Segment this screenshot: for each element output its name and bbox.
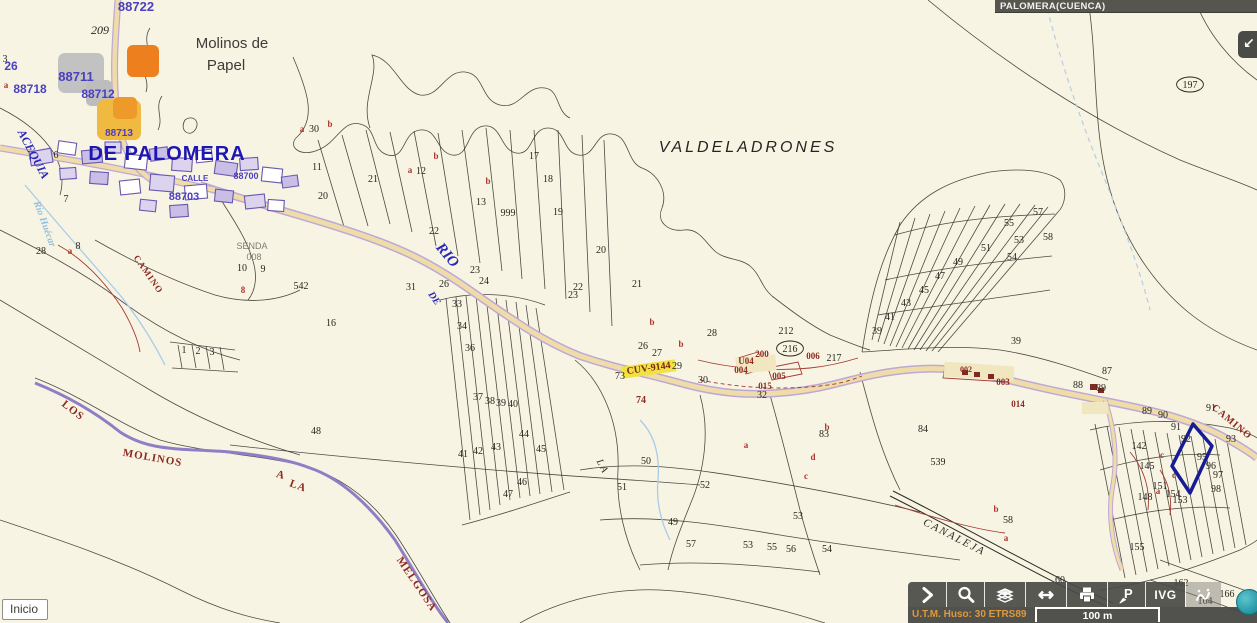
map-label: 20 <box>596 245 606 256</box>
map-label: 92 <box>1181 434 1191 445</box>
map-label: 005 <box>772 371 786 381</box>
map-label: 89 <box>1142 406 1152 417</box>
map-toolbar: P IVG <box>908 582 1221 607</box>
map-label: 28 <box>36 246 46 257</box>
map-label: 53 <box>743 540 753 551</box>
map-label: a <box>1004 533 1009 543</box>
map-label: 47 <box>935 271 945 282</box>
map-label: 74 <box>636 395 646 406</box>
map-label: DE PALOMERA <box>88 143 245 165</box>
map-label: 39 <box>872 326 882 337</box>
map-label: 55 <box>1004 218 1014 229</box>
map-label: 88 <box>1073 380 1083 391</box>
map-label: 200 <box>755 349 769 359</box>
map-label: 21 <box>632 279 642 290</box>
map-label: 54 <box>1007 252 1017 263</box>
status-bar: U.T.M. Huso: 30 ETRS89 100 m <box>908 607 1257 623</box>
map-label: 84 <box>918 424 928 435</box>
magnifier-icon <box>955 584 977 606</box>
map-label: b <box>993 504 998 514</box>
map-label: b <box>433 151 438 161</box>
map-label: 20 <box>318 191 328 202</box>
map-label: 47 <box>503 489 513 500</box>
point-query-button[interactable]: P <box>1107 582 1145 607</box>
map-label: 27 <box>652 348 662 359</box>
map-label: 003 <box>996 377 1010 387</box>
map-label: 48 <box>311 426 321 437</box>
map-label: 209 <box>91 23 109 37</box>
map-label: 30 <box>698 375 708 386</box>
map-label: c <box>1172 470 1176 480</box>
parcel-strip-lines <box>178 128 1246 578</box>
map-label: 153 <box>1173 495 1188 506</box>
map-label: a <box>4 80 9 90</box>
map-label: MOLINOS <box>122 447 183 469</box>
svg-text:P: P <box>1124 586 1133 601</box>
map-label: 148 <box>1138 492 1153 503</box>
sketch-button[interactable] <box>1185 582 1221 607</box>
map-label: 91 <box>1171 422 1181 433</box>
map-label: 40 <box>508 399 518 410</box>
map-label: 21 <box>368 174 378 185</box>
map-label: 53 <box>793 511 803 522</box>
map-label: b <box>327 119 332 129</box>
map-label: 51 <box>981 243 991 254</box>
map-label: 58 <box>1003 515 1013 526</box>
map-label: 46 <box>517 477 527 488</box>
red-parcel-lines <box>58 245 1171 533</box>
expand-tools-button[interactable] <box>908 582 946 607</box>
map-label: 33 <box>452 299 462 310</box>
map-label: LA <box>593 456 611 476</box>
map-canvas[interactable]: Molinos dePapelVALDELADRONESDE PALOMERAA… <box>0 0 1257 623</box>
map-title-bar: PALOMERA(CUENCA) <box>995 0 1257 13</box>
map-label: LOS <box>59 398 86 423</box>
map-label: Molinos de <box>196 35 269 52</box>
map-label: 542 <box>294 281 309 292</box>
map-label: 50 <box>641 456 651 467</box>
map-label: 539 <box>931 457 946 468</box>
map-label: CAMINO <box>132 253 166 295</box>
map-label: 58 <box>1043 232 1053 243</box>
map-label: 55 <box>767 542 777 553</box>
map-label: 142 <box>1132 441 1147 452</box>
orange-marker <box>127 45 159 77</box>
map-label: 88722 <box>118 0 154 14</box>
sketch-icon <box>1193 584 1215 606</box>
map-label: LA <box>288 478 308 495</box>
map-label: 008 <box>246 252 261 262</box>
map-label: VALDELADRONES <box>659 139 838 156</box>
map-label: 93 <box>1226 434 1236 445</box>
map-label: 7 <box>64 194 69 205</box>
double-arrow-icon <box>1035 584 1057 606</box>
map-label: 88713 <box>105 128 133 139</box>
map-label: 39 <box>496 398 506 409</box>
map-label: 006 <box>806 351 820 361</box>
map-label: 91 <box>1206 403 1216 414</box>
map-label: 38 <box>485 396 495 407</box>
collapse-panel-button[interactable]: ↙ <box>1238 31 1257 58</box>
chevron-right-icon <box>916 584 938 606</box>
map-label: 49 <box>953 257 963 268</box>
map-labels: Molinos dePapelVALDELADRONESDE PALOMERAA… <box>3 0 1254 614</box>
map-label: 014 <box>1011 399 1025 409</box>
map-label: a <box>744 440 749 450</box>
map-label: 28 <box>707 328 717 339</box>
inicio-button[interactable]: Inicio <box>2 599 48 620</box>
collapse-arrow-icon: ↙ <box>1243 36 1255 52</box>
stream-lines <box>25 0 1150 540</box>
map-viewer: Molinos dePapelVALDELADRONESDE PALOMERAA… <box>0 0 1257 623</box>
map-label: 13 <box>476 197 486 208</box>
map-label: 155 <box>1130 542 1145 553</box>
map-label: 42 <box>473 446 483 457</box>
map-label: b <box>649 317 654 327</box>
map-label: 39 <box>1011 336 1021 347</box>
map-label: DE <box>425 289 443 308</box>
municipal-boundary <box>35 383 448 623</box>
scale-label: 100 m <box>1083 610 1113 622</box>
map-label: 166 <box>1220 589 1235 600</box>
map-label: 51 <box>617 482 627 493</box>
map-label: 8 <box>76 241 81 252</box>
map-label: 31 <box>406 282 416 293</box>
map-title: PALOMERA(CUENCA) <box>1000 1 1105 12</box>
map-label: 56 <box>786 544 796 555</box>
map-label: 12 <box>416 166 426 177</box>
map-label: 23 <box>470 265 480 276</box>
map-label: 88711 <box>58 69 93 84</box>
map-label: 002 <box>960 365 972 374</box>
map-label: 9 <box>261 264 266 275</box>
map-label: 216 <box>783 344 798 355</box>
map-label: SENDA <box>236 241 267 251</box>
map-label: 26 <box>439 279 449 290</box>
map-label: d <box>810 452 815 462</box>
map-label: 212 <box>779 326 794 337</box>
map-label: 3 <box>3 54 8 65</box>
map-label: 73 <box>615 371 625 382</box>
parcel-lines <box>0 0 1257 623</box>
map-label: 36 <box>465 343 475 354</box>
map-label: 43 <box>491 442 501 453</box>
map-label: 32 <box>757 390 767 401</box>
map-label: 41 <box>885 312 895 323</box>
map-label: 18 <box>543 174 553 185</box>
map-label: 88718 <box>13 82 47 96</box>
map-label: 89 <box>1096 383 1106 394</box>
layers-icon <box>994 584 1016 606</box>
map-label: Río Huécar <box>31 199 58 249</box>
map-label: 98 <box>1211 484 1221 495</box>
map-label: 22 <box>429 226 439 237</box>
map-label: 34 <box>457 321 467 332</box>
map-label: b <box>678 339 683 349</box>
scale-bar: 100 m <box>1035 607 1160 622</box>
map-label: 88712 <box>81 87 115 101</box>
map-label: 16 <box>326 318 336 329</box>
map-label: A <box>275 468 287 482</box>
point-p-icon: P <box>1116 584 1138 606</box>
ivg-button[interactable]: IVG <box>1145 582 1185 607</box>
map-label: 8 <box>241 285 246 295</box>
map-label: 2 <box>196 346 201 357</box>
map-label: MELGOSA <box>394 555 439 614</box>
map-label: 53 <box>1014 235 1024 246</box>
map-label: 45 <box>536 444 546 455</box>
map-label: 41 <box>458 449 468 460</box>
map-label: 23 <box>568 290 578 301</box>
map-label: 54 <box>822 544 832 555</box>
map-label: c <box>804 471 808 481</box>
map-label: a <box>68 246 73 256</box>
map-label: 30 <box>309 124 319 135</box>
map-label: 10 <box>237 263 247 274</box>
map-label: 19 <box>553 207 563 218</box>
map-label: 1 <box>182 345 187 356</box>
map-label: 17 <box>529 151 539 162</box>
zoom-search-button[interactable] <box>946 582 984 607</box>
map-label: CALLE <box>182 174 209 183</box>
map-label: 37 <box>473 392 483 403</box>
map-label: 145 <box>1140 461 1155 472</box>
map-label: 26 <box>638 341 648 352</box>
map-label: 52 <box>700 480 710 491</box>
map-label: 97 <box>1213 470 1223 481</box>
map-label: 90 <box>1158 410 1168 421</box>
map-label: 6 <box>54 150 59 161</box>
layers-button[interactable] <box>984 582 1025 607</box>
map-label: 43 <box>901 298 911 309</box>
orange-marker-small <box>113 97 137 119</box>
map-label: Papel <box>207 57 245 74</box>
map-label: 999 <box>501 208 516 219</box>
utm-reference-label: U.T.M. Huso: 30 ETRS89 <box>912 609 1026 620</box>
info-button[interactable] <box>1236 589 1257 615</box>
map-label: 004 <box>734 365 748 375</box>
map-label: 217 <box>827 353 842 364</box>
map-label: a <box>408 165 413 175</box>
map-label: 197 <box>1183 80 1198 91</box>
map-label: 3 <box>210 347 215 358</box>
measure-button[interactable] <box>1025 582 1066 607</box>
map-label: 11 <box>312 162 322 173</box>
map-label: c <box>1160 450 1164 460</box>
map-label: b <box>485 176 490 186</box>
printer-icon <box>1076 584 1098 606</box>
map-label: 57 <box>1033 207 1043 218</box>
map-label: 29 <box>672 361 682 372</box>
print-button[interactable] <box>1066 582 1107 607</box>
map-label: 49 <box>668 517 678 528</box>
map-label: a <box>300 124 305 134</box>
map-label: 24 <box>479 276 489 287</box>
map-label: 88700 <box>233 171 258 181</box>
map-label: 44 <box>519 429 529 440</box>
map-label: 83 <box>819 429 829 440</box>
map-label: 87 <box>1102 366 1112 377</box>
map-label: 57 <box>686 539 696 550</box>
map-label: 88703 <box>169 191 200 203</box>
map-label: 45 <box>919 285 929 296</box>
